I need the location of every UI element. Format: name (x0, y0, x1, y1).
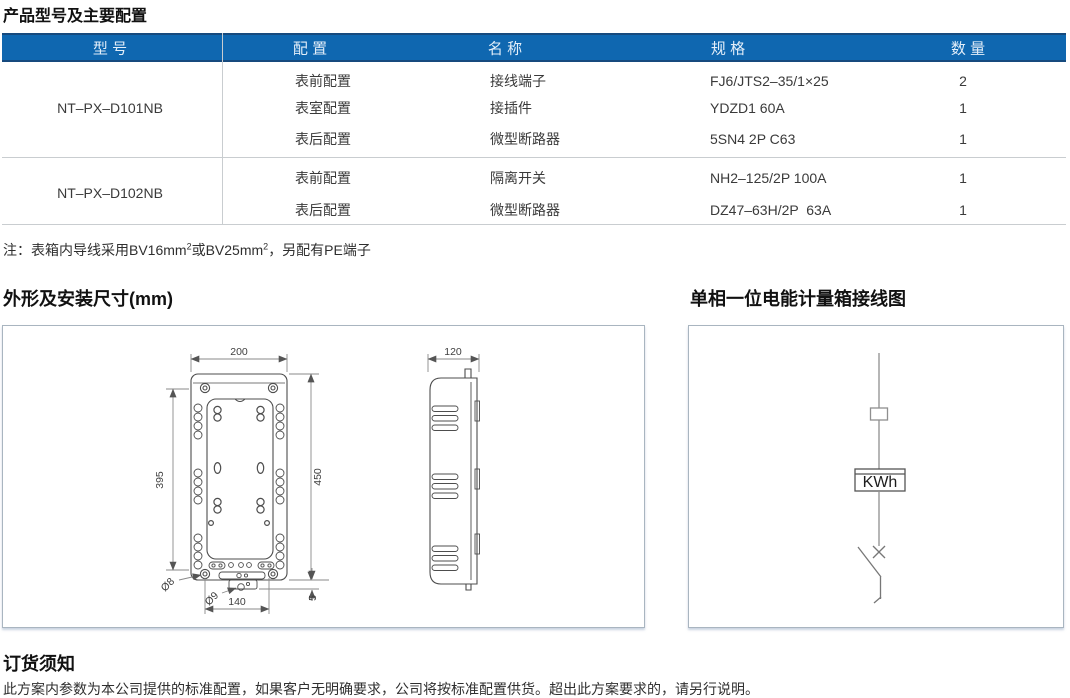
spec-cell: YDZD1 60A (710, 100, 785, 116)
config-table: 型 号 配 置 名 称 规 格 数 量 NT–PX–D101NB NT–PX–D… (2, 33, 1066, 226)
dim-front-width: 200 (230, 346, 248, 358)
config-cell: 表前配置 (295, 71, 351, 91)
spec-cell: DZ47–63H/2P 63A (710, 202, 831, 218)
spec-cell: 5SN4 2P C63 (710, 131, 795, 147)
qty-cell: 1 (959, 131, 967, 147)
ordering-text: 此方案内参数为本公司提供的标准配置，如果客户无明确要求，公司将按标准配置供货。超… (3, 679, 759, 698)
model-cell: NT–PX–D102NB (57, 185, 163, 201)
config-cell: 表后配置 (295, 129, 351, 149)
name-cell: 微型断路器 (490, 200, 560, 220)
dim-side-depth: 120 (444, 346, 462, 358)
name-cell: 接插件 (490, 98, 532, 118)
dimension-panel: 200 450 395 140 5 Ø8 Ø9 120 (2, 325, 645, 628)
col-header-qty: 数 量 (951, 37, 985, 58)
table-bottom-line (2, 224, 1066, 225)
dim-mount-height: 395 (154, 471, 166, 489)
model-cell: NT–PX–D101NB (57, 100, 163, 116)
col-header-model: 型 号 (93, 37, 127, 58)
wire-note: 注：表箱内导线采用BV16mm2或BV25mm2，另配有PE端子 (3, 240, 371, 260)
side-vent-slats (432, 406, 458, 571)
meter-label: KWh (863, 474, 898, 491)
spec-cell: NH2–125/2P 100A (710, 170, 827, 186)
dimensions-section-title: 外形及安装尺寸(mm) (3, 285, 173, 311)
col-header-spec: 规 格 (711, 37, 745, 58)
name-cell: 微型断路器 (490, 129, 560, 149)
product-spec-page: 产品型号及主要配置 型 号 配 置 名 称 规 格 数 量 NT–PX–D101… (0, 0, 1070, 698)
breaker-symbol (858, 546, 885, 603)
dim-front-height: 450 (312, 468, 324, 486)
mounting-holes (209, 406, 270, 525)
config-cell: 表后配置 (295, 200, 351, 220)
col-header-name: 名 称 (488, 37, 522, 58)
bottom-fittings (209, 562, 274, 590)
table-column-divider (222, 33, 223, 224)
config-table-header: 型 号 配 置 名 称 规 格 数 量 (2, 33, 1066, 62)
name-cell: 隔离开关 (490, 168, 546, 188)
wiring-panel: KWh (688, 325, 1064, 628)
dim-hole-bottom: Ø9 (203, 590, 222, 609)
vent-coils-right (276, 404, 284, 569)
table-group-divider (2, 157, 1066, 158)
dimension-drawing: 200 450 395 140 5 Ø8 Ø9 120 (3, 326, 644, 627)
dim-hole-top: Ø8 (159, 576, 178, 595)
qty-cell: 2 (959, 73, 967, 89)
wiring-diagram: KWh (689, 326, 1063, 627)
page-title: 产品型号及主要配置 (3, 2, 147, 26)
fuse-symbol (871, 408, 888, 420)
spec-cell: FJ6/JTS2–35/1×25 (710, 73, 829, 89)
front-view-drawing (191, 374, 287, 590)
vent-coils-left (194, 404, 202, 569)
wiring-section-title: 单相一位电能计量箱接线图 (690, 285, 906, 311)
dim-mount-width: 140 (228, 596, 246, 608)
qty-cell: 1 (959, 202, 967, 218)
note-part: 或BV25mm (192, 242, 264, 258)
col-header-config: 配 置 (293, 37, 327, 58)
qty-cell: 1 (959, 100, 967, 116)
note-part: 注：表箱内导线采用BV16mm (3, 242, 187, 258)
qty-cell: 1 (959, 170, 967, 186)
note-part: ，另配有PE端子 (268, 242, 371, 258)
config-cell: 表前配置 (295, 168, 351, 188)
ordering-section-title: 订货须知 (3, 650, 75, 676)
name-cell: 接线端子 (490, 71, 546, 91)
config-cell: 表室配置 (295, 98, 351, 118)
dim-bottom-offset: 5 (307, 595, 319, 601)
side-view-drawing (430, 369, 480, 590)
